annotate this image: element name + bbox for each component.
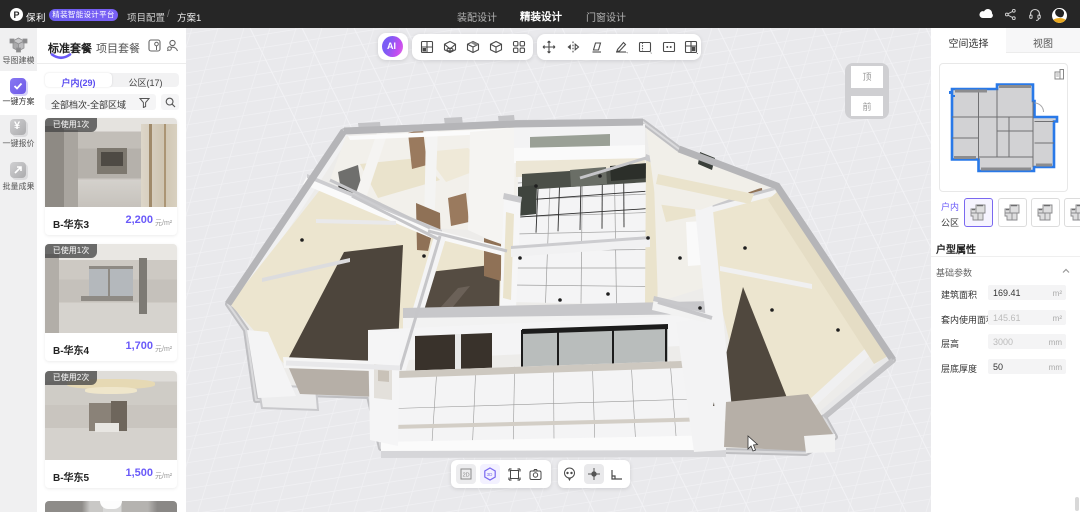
svg-text:3D: 3D	[487, 472, 494, 477]
svg-text:2D: 2D	[463, 473, 470, 479]
